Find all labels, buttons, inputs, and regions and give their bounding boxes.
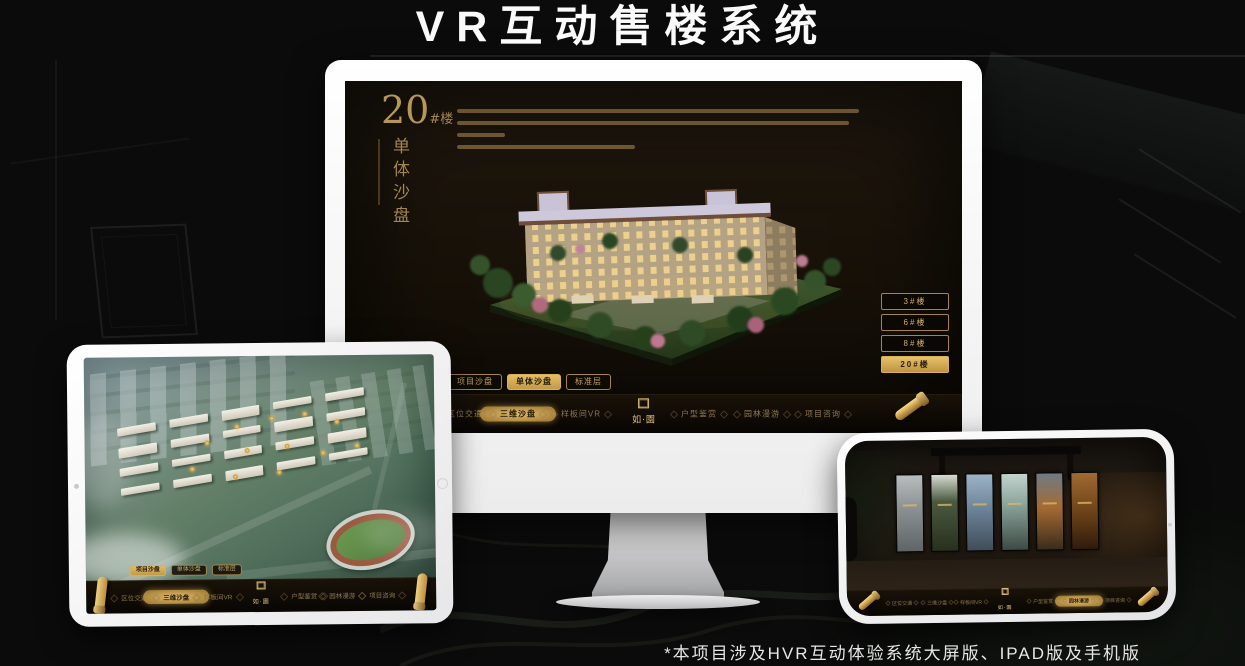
camera-icon <box>74 484 79 489</box>
floor-button-3[interactable]: 3#楼 <box>881 293 949 310</box>
nav-item-3d-sandtable[interactable]: 三维沙盘 <box>919 599 955 607</box>
building-badge-icon[interactable] <box>190 467 195 472</box>
building-block <box>276 436 315 450</box>
building-badge-icon[interactable] <box>205 441 210 446</box>
building-badge-icon[interactable] <box>234 424 239 429</box>
camera-icon <box>1168 522 1172 526</box>
tab-single-sandtable[interactable]: 单体沙盘 <box>507 374 561 390</box>
gallery-panel[interactable] <box>895 474 924 552</box>
view-tabs: 项目沙盘 单体沙盘 标准层 <box>130 564 242 576</box>
seal-icon <box>257 581 266 589</box>
monitor-stand-base <box>556 595 760 609</box>
courtyard-gate <box>930 446 1080 456</box>
building-block <box>326 407 365 421</box>
scroll-menu-icon[interactable] <box>94 576 108 611</box>
building-badge-icon[interactable] <box>334 419 339 424</box>
nav-item-garden-roam[interactable]: 园林漫游 <box>1055 595 1103 607</box>
monitor-stand-neck <box>592 513 724 599</box>
building-subtitle: 单体沙盘 <box>387 137 412 233</box>
page-title: VR互动售楼系统 <box>0 0 1245 56</box>
building-block <box>172 454 211 467</box>
description-line <box>457 109 859 113</box>
nav-item-project-info[interactable]: 项目咨询 <box>355 589 409 600</box>
building-block <box>277 456 316 470</box>
background-map-street <box>55 60 57 320</box>
tab-project-sandtable[interactable]: 项目沙盘 <box>130 565 166 577</box>
background-line <box>1134 253 1237 318</box>
tablet-device: 项目沙盘 单体沙盘 标准层 区位交通 三维沙盘 样板间VR 如·園 户型鉴赏 园… <box>67 341 454 627</box>
tab-single-sandtable[interactable]: 单体沙盘 <box>171 564 207 576</box>
tab-standard-floor[interactable]: 标准层 <box>566 374 611 390</box>
phone-device: 区位交通 三维沙盘 样板间VR 如·園 户型鉴赏 园林漫游 项目咨询 <box>837 429 1177 625</box>
scroll-menu-icon[interactable] <box>414 573 428 608</box>
building-badge-icon[interactable] <box>269 416 274 421</box>
gallery-panel[interactable] <box>965 473 994 551</box>
building-block <box>173 474 212 488</box>
brand-logo: 如·園 <box>632 398 656 427</box>
background-photo-band <box>968 51 1245 213</box>
nav-item-3d-sandtable[interactable]: 三维沙盘 <box>480 407 556 422</box>
phone-screen: 区位交通 三维沙盘 样板间VR 如·園 户型鉴赏 园林漫游 项目咨询 <box>845 437 1168 616</box>
floor-button-8[interactable]: 8#楼 <box>881 335 949 352</box>
view-tabs: 项目沙盘 单体沙盘 标准层 <box>448 374 611 390</box>
nav-item-project-info[interactable]: 项目咨询 <box>791 409 855 420</box>
building-number-suffix: #楼 <box>429 112 453 127</box>
building-block <box>225 465 264 482</box>
scroll-menu-icon[interactable] <box>857 592 878 612</box>
building-block <box>328 427 367 444</box>
building-badge-icon[interactable] <box>277 470 282 475</box>
building-block <box>222 425 261 438</box>
nav-item-showroom-vr[interactable]: 样板间VR <box>547 409 615 420</box>
floor-button-6[interactable]: 6#楼 <box>881 314 949 331</box>
building-block <box>224 445 263 459</box>
building-badge-icon[interactable] <box>245 448 250 453</box>
stage: VR互动售楼系统 20#楼 单体沙盘 <box>0 0 1245 666</box>
building-block <box>170 434 209 448</box>
gallery-panel[interactable] <box>1035 472 1064 550</box>
brand-logo-text: 如·園 <box>998 604 1013 610</box>
brand-logo-text: 如·園 <box>632 415 656 425</box>
gallery-panel[interactable] <box>1000 473 1029 551</box>
building-3d-render <box>440 133 860 368</box>
building-badge-icon[interactable] <box>355 443 360 448</box>
tablet-screen: 项目沙盘 单体沙盘 标准层 区位交通 三维沙盘 样板间VR 如·園 户型鉴赏 园… <box>84 354 437 614</box>
background-line <box>1119 198 1222 263</box>
background-plaque <box>90 224 198 339</box>
gallery-panels <box>895 472 1099 553</box>
nav-item-showroom-vr[interactable]: 样板间VR <box>190 591 247 602</box>
nav-item-floorplans[interactable]: 户型鉴赏 <box>667 409 731 420</box>
nav-item-project-info[interactable]: 项目咨询 <box>1097 596 1133 604</box>
floor-button-20[interactable]: 20#楼 <box>881 356 949 373</box>
building-number: 20 <box>381 88 429 132</box>
scroll-menu-icon[interactable] <box>1136 588 1157 608</box>
app-bottom-nav: 区位交通 三维沙盘 样板间VR 如·園 户型鉴赏 园林漫游 项目咨询 <box>86 577 436 614</box>
home-button[interactable] <box>437 478 448 489</box>
brand-logo: 如·園 <box>998 587 1013 613</box>
gallery-panel[interactable] <box>930 474 959 552</box>
building-badge-icon[interactable] <box>233 474 238 479</box>
building-badge-icon[interactable] <box>302 412 307 417</box>
nav-item-showroom-vr[interactable]: 样板间VR <box>952 598 990 606</box>
description-line <box>457 121 849 125</box>
background-line <box>1139 148 1242 213</box>
nav-item-garden-roam[interactable]: 园林漫游 <box>730 409 794 420</box>
nav-item-location-traffic[interactable]: 区位交通 <box>884 599 920 607</box>
background-map-street <box>11 137 190 164</box>
phone-notch <box>846 497 858 561</box>
building-block <box>274 416 313 433</box>
floor-selector: 3#楼 6#楼 8#楼 20#楼 <box>881 293 949 377</box>
brand-logo-text: 如·園 <box>253 598 270 605</box>
scroll-menu-icon[interactable] <box>893 394 926 422</box>
tab-standard-floor[interactable]: 标准层 <box>212 564 242 576</box>
building-badge-icon[interactable] <box>321 450 326 455</box>
app-bottom-nav: 区位交通 三维沙盘 样板间VR 如·園 户型鉴赏 园林漫游 项目咨询 <box>847 586 1168 616</box>
seal-icon <box>1001 587 1008 594</box>
building-block <box>329 447 368 460</box>
seal-icon <box>639 398 650 408</box>
building-badge-icon[interactable] <box>285 444 290 449</box>
brand-logo: 如·園 <box>253 581 270 608</box>
tab-project-sandtable[interactable]: 项目沙盘 <box>448 374 502 390</box>
footnote: *本项目涉及HVR互动体验系统大屏版、IPAD版及手机版 <box>664 639 1141 664</box>
gallery-panel[interactable] <box>1070 472 1099 550</box>
